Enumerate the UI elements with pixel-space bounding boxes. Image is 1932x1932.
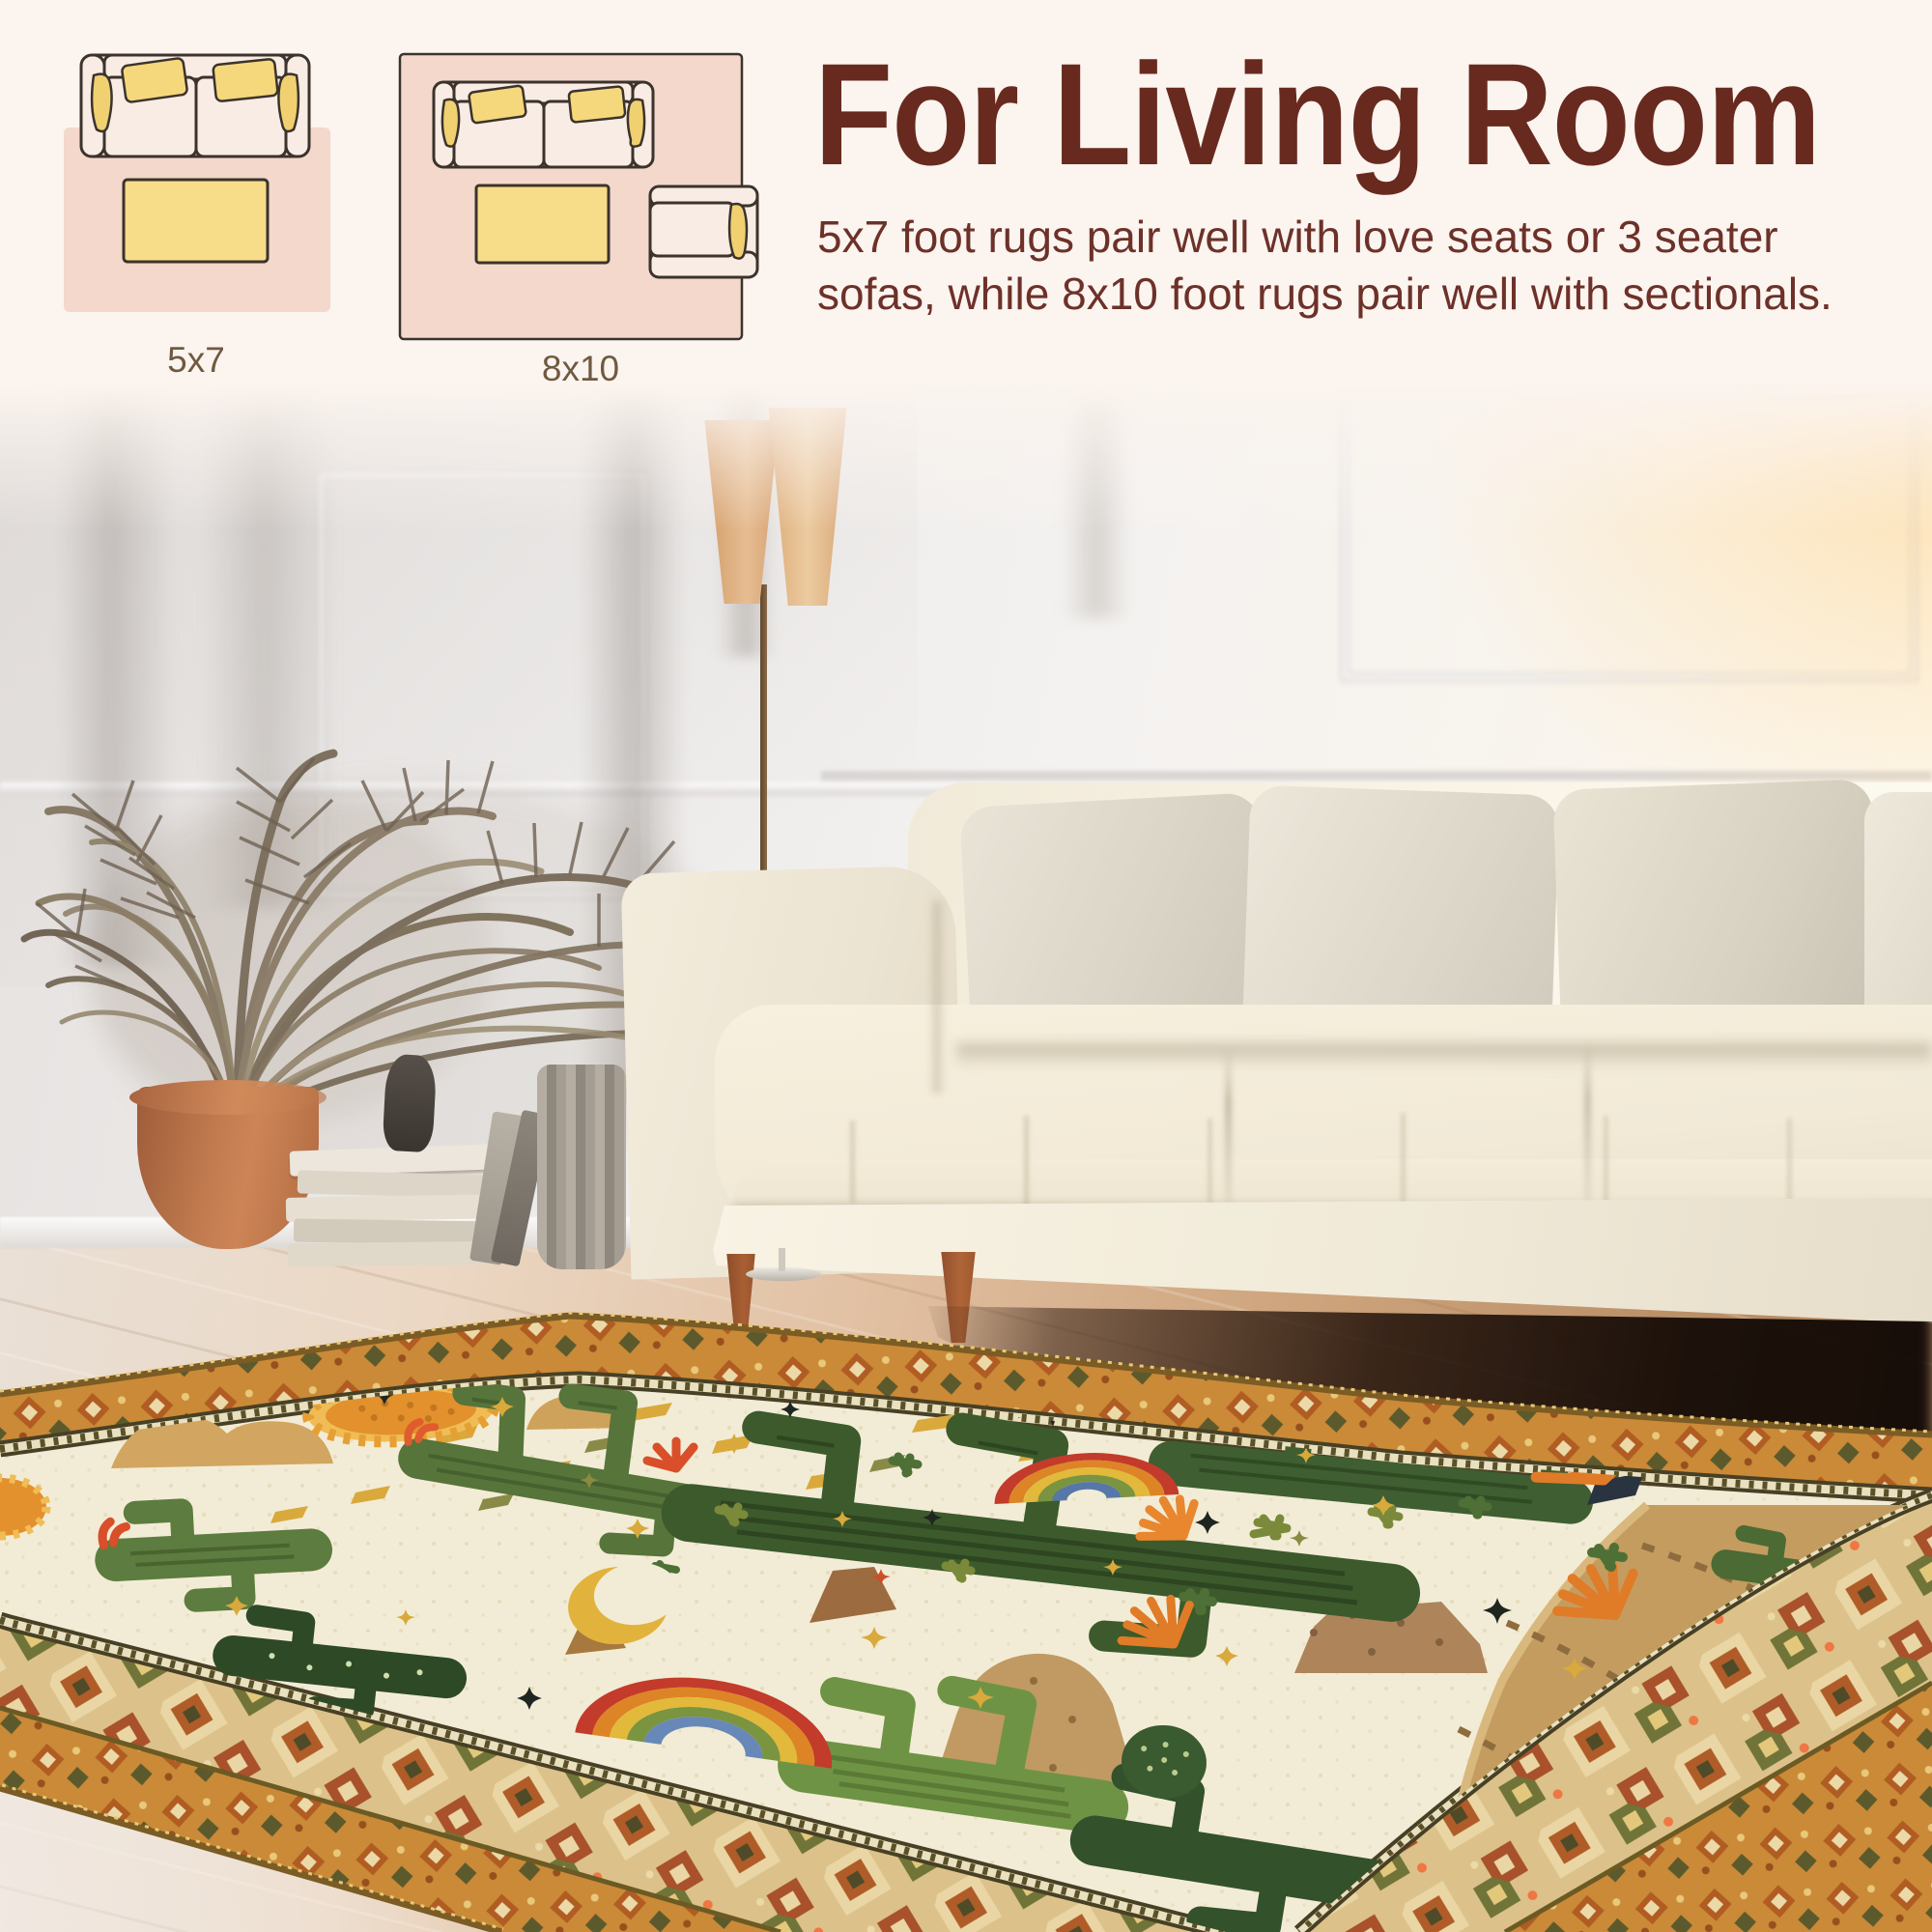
svg-text:8x10: 8x10 <box>542 349 619 388</box>
svg-text:5x7: 5x7 <box>167 340 225 380</box>
